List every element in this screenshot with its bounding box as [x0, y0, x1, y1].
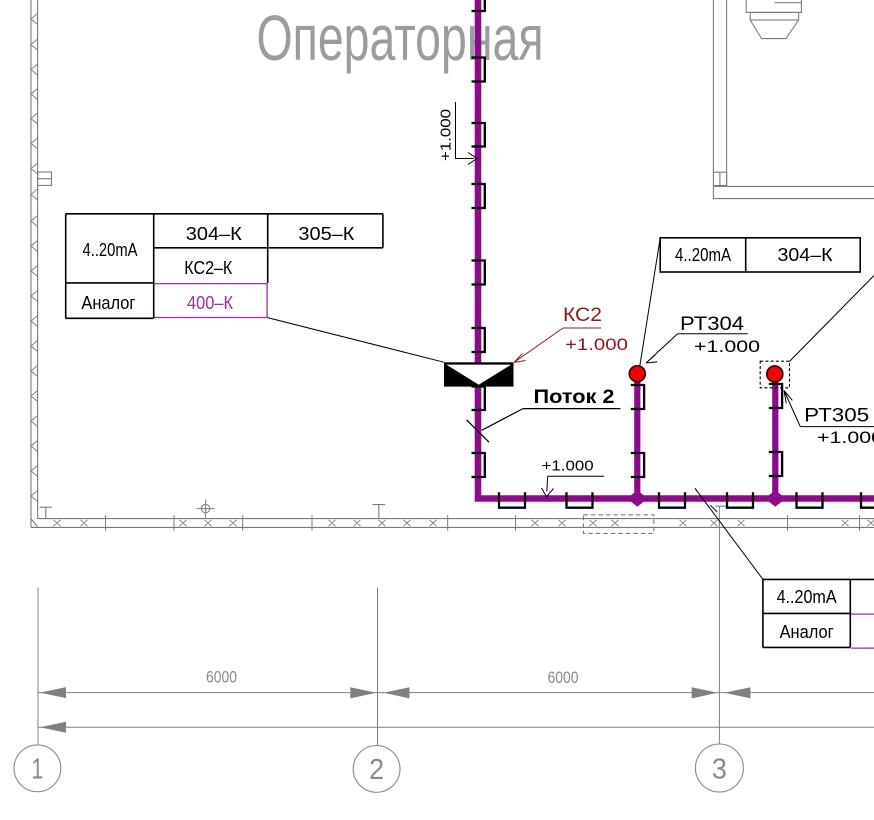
svg-text:+1.000: +1.000	[565, 336, 628, 354]
svg-text:304–К: 304–К	[778, 245, 834, 265]
svg-text:6000: 6000	[548, 668, 579, 687]
svg-text:304–К: 304–К	[186, 224, 243, 244]
svg-text:305–К: 305–К	[298, 224, 355, 244]
svg-text:4..20mA: 4..20mA	[83, 240, 138, 260]
svg-text:400–К: 400–К	[187, 293, 233, 313]
svg-text:КС2: КС2	[563, 305, 602, 326]
svg-text:4..20mA: 4..20mA	[675, 245, 731, 265]
svg-text:Аналог: Аналог	[780, 622, 834, 642]
svg-text:3: 3	[712, 754, 727, 786]
svg-text:КС2–К: КС2–К	[184, 258, 232, 278]
svg-text:6000: 6000	[206, 668, 237, 687]
svg-text:+1.000: +1.000	[438, 109, 455, 161]
svg-text:1: 1	[31, 754, 43, 786]
svg-text:2: 2	[369, 754, 384, 786]
svg-text:+1.000: +1.000	[694, 338, 760, 356]
svg-text:+1.000: +1.000	[542, 458, 594, 475]
svg-text:Операторная: Операторная	[257, 2, 544, 74]
svg-text:4..20mA: 4..20mA	[777, 587, 837, 607]
svg-text:+1.000: +1.000	[817, 429, 874, 447]
svg-text:Аналог: Аналог	[81, 293, 135, 313]
svg-text:РТ304: РТ304	[680, 314, 744, 335]
svg-text:РТ305: РТ305	[804, 406, 869, 427]
svg-text:Поток 2: Поток 2	[534, 387, 615, 408]
